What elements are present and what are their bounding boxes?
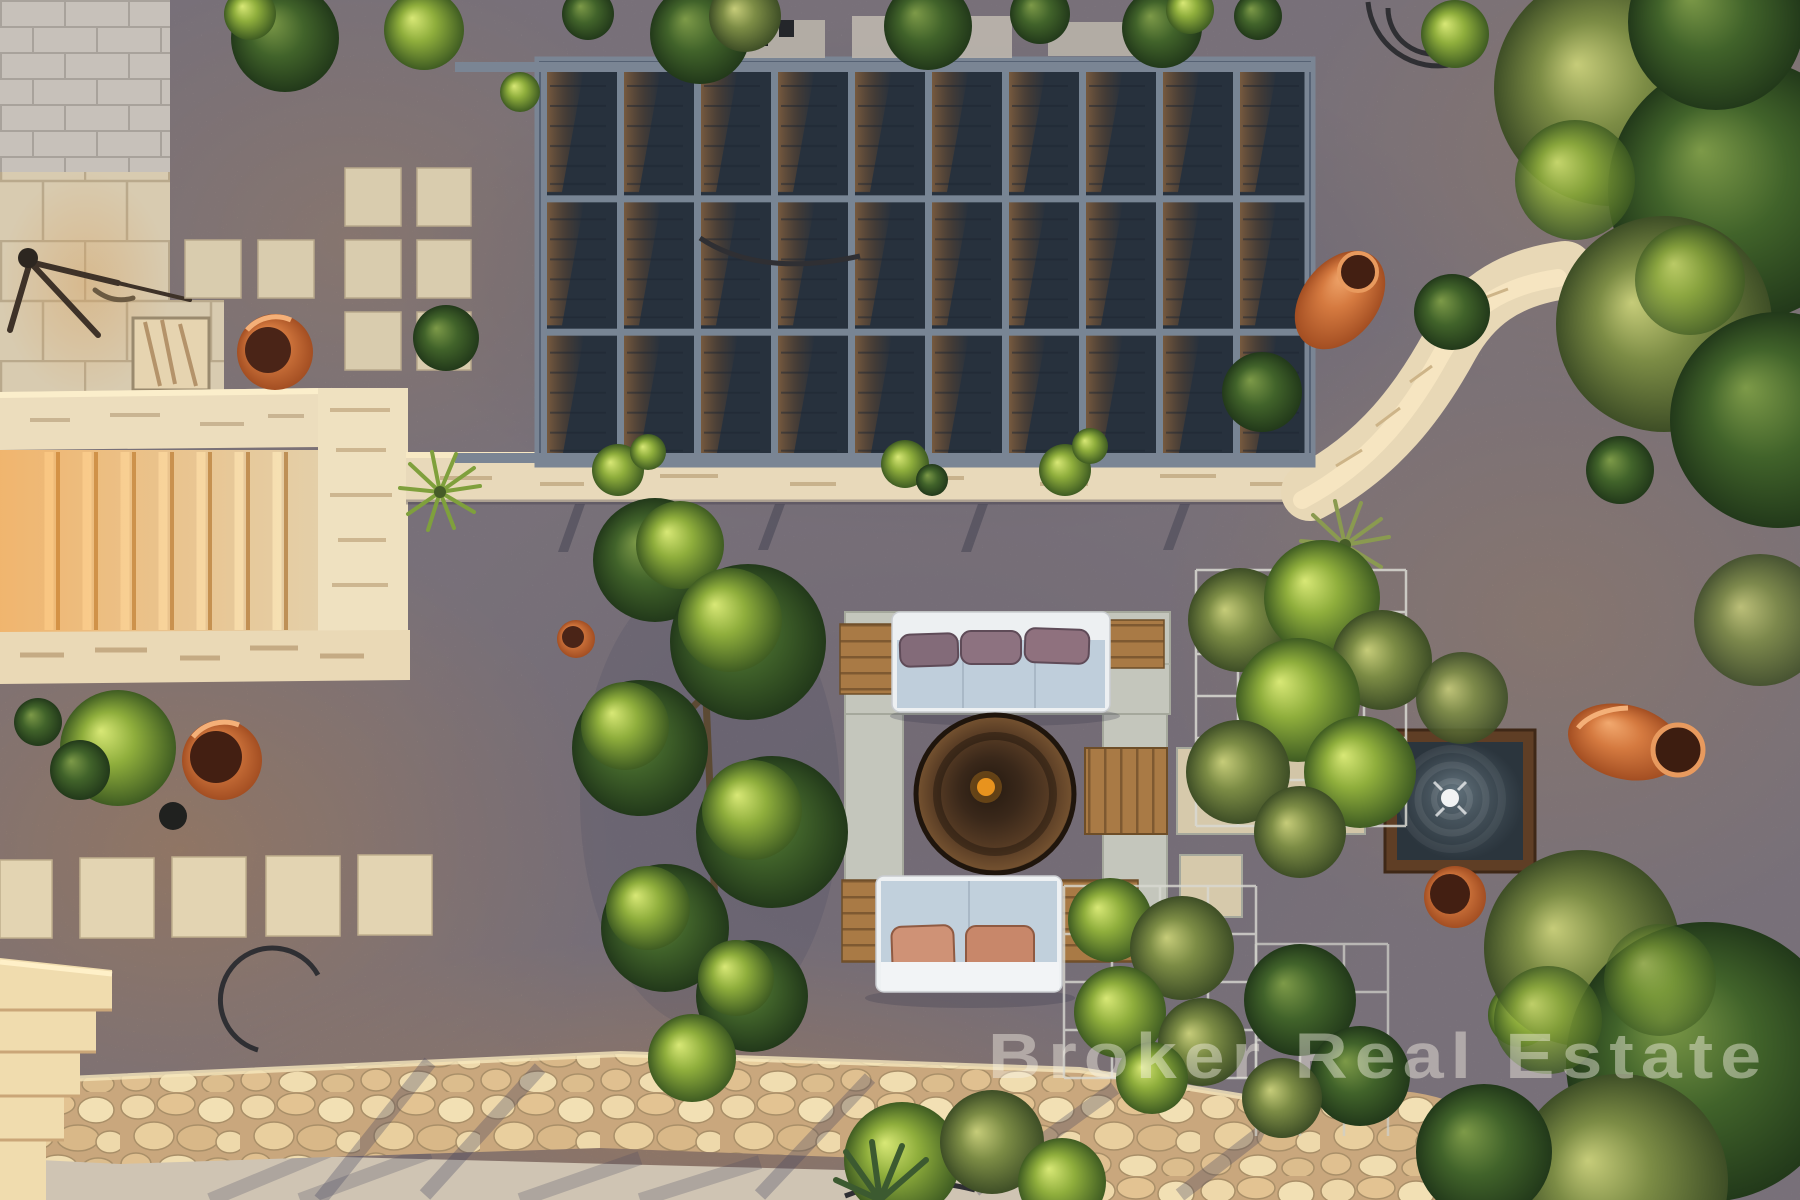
side-wall [318,388,408,634]
terracotta-pot-small [557,620,595,658]
cushion [899,633,958,667]
fountain-splash [1441,789,1459,807]
aerial-photo-stage: Broker Real Estate [0,0,1800,1200]
wood-bench-right [1108,620,1164,668]
wood-bench-left [840,624,894,694]
cushion [961,631,1021,664]
ember [977,778,995,796]
terracotta-pot-upper [237,314,313,390]
terracotta-pot-left [182,720,262,800]
cushion [1024,628,1089,664]
watermark-text: Broker Real Estate [988,1020,1768,1092]
stone-tile-floor-upper [0,0,170,172]
garden-aerial-photo: Broker Real Estate [0,0,1800,1200]
wood-cube-table [1085,748,1167,834]
stone-retaining-walls [0,388,410,684]
stair-flight [0,450,318,632]
fire-bowl [916,715,1074,873]
grill-object [779,20,794,37]
pergola [455,62,1312,462]
wood-bench-left [842,880,876,962]
driftwood-inlay-panel [133,318,209,390]
shade-sail-canopy [540,62,1310,462]
dark-bucket [159,802,187,830]
sofa-front-band [881,962,1059,990]
terracotta-pot-by-water [1424,866,1486,928]
